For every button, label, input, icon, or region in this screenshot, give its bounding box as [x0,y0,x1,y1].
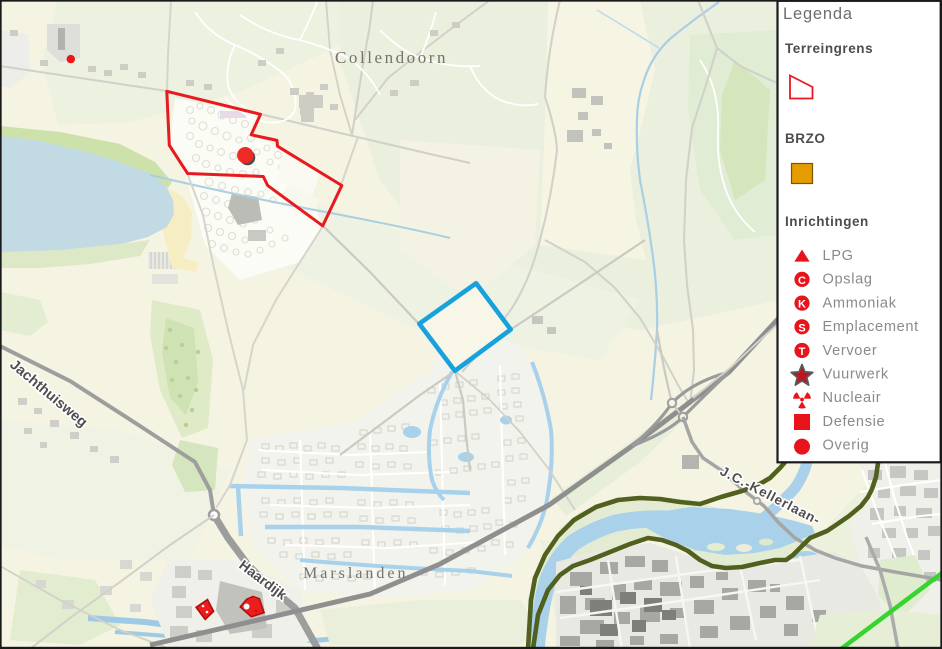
svg-text:Ammoniak: Ammoniak [823,295,897,311]
svg-text:Nucleair: Nucleair [823,390,882,406]
svg-text:Opslag: Opslag [823,272,873,288]
svg-text:Emplacement: Emplacement [823,319,919,335]
svg-text:T: T [799,346,806,358]
svg-text:Defensie: Defensie [823,414,886,430]
svg-text:Legenda: Legenda [783,5,853,23]
svg-text:BRZO: BRZO [785,131,825,146]
svg-text:LPG: LPG [823,248,854,264]
svg-text:C: C [798,275,806,287]
svg-text:Vervoer: Vervoer [823,343,878,359]
svg-text:S: S [798,322,805,334]
svg-text:Vuurwerk: Vuurwerk [823,367,889,383]
svg-text:K: K [798,299,806,311]
svg-text:Inrichtingen: Inrichtingen [785,214,869,229]
svg-text:Overig: Overig [823,438,870,454]
svg-text:Collendoorn: Collendoorn [335,48,448,67]
svg-text:Terreingrens: Terreingrens [785,41,873,56]
svg-text:Marslanden: Marslanden [303,565,409,582]
